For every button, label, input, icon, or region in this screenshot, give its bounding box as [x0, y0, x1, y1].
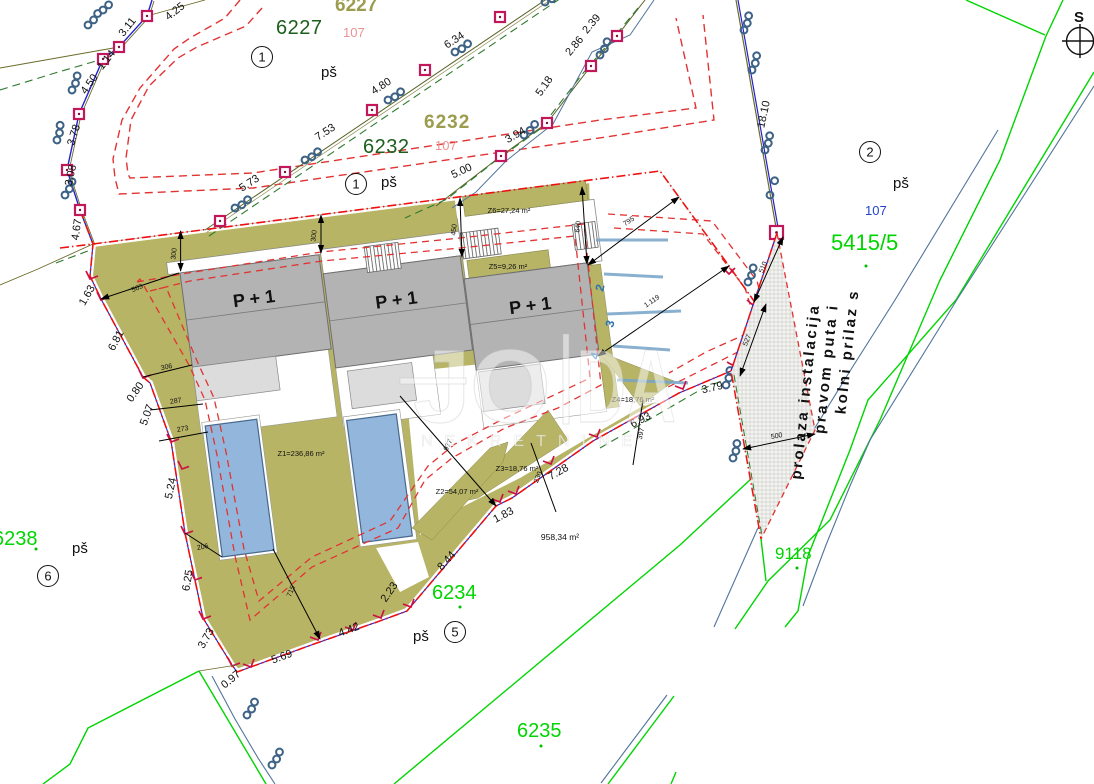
svg-text:J: J: [413, 329, 471, 445]
svg-text:6232: 6232: [424, 112, 470, 133]
svg-text:Z6=27,24 m²: Z6=27,24 m²: [488, 206, 531, 215]
svg-text:pš: pš: [381, 174, 397, 191]
svg-text:2: 2: [866, 145, 873, 160]
svg-text:Z3=18,76 m²: Z3=18,76 m²: [496, 464, 539, 473]
svg-text:6227: 6227: [276, 17, 323, 39]
svg-text:Z5=9,26 m²: Z5=9,26 m²: [489, 262, 528, 271]
svg-text:pš: pš: [321, 64, 337, 81]
svg-text:1: 1: [352, 177, 359, 192]
svg-text:pš: pš: [893, 175, 909, 192]
svg-text:6238: 6238: [0, 528, 38, 550]
svg-text:450: 450: [450, 224, 458, 236]
svg-text:6235: 6235: [517, 720, 562, 742]
svg-text:5415/5: 5415/5: [831, 230, 898, 255]
svg-text:6: 6: [44, 569, 51, 584]
svg-text:6227: 6227: [335, 0, 377, 16]
svg-text:6232: 6232: [363, 136, 410, 158]
svg-text:640: 640: [574, 221, 582, 233]
svg-text:958,34 m²: 958,34 m²: [541, 532, 579, 542]
svg-text:107: 107: [343, 25, 365, 40]
svg-text:9118: 9118: [775, 544, 812, 563]
svg-text:DA: DA: [576, 329, 676, 445]
svg-text:107: 107: [865, 203, 887, 218]
svg-text:pš: pš: [72, 540, 88, 557]
svg-text:107: 107: [435, 138, 457, 153]
svg-text:Z2=54,07 m²: Z2=54,07 m²: [436, 487, 479, 496]
svg-text:1: 1: [258, 50, 265, 65]
svg-text:5: 5: [451, 625, 458, 640]
svg-text:6234: 6234: [432, 582, 477, 604]
svg-text:O: O: [470, 329, 551, 445]
svg-text:S: S: [1074, 9, 1084, 26]
svg-text:NEKRETNINE: NEKRETNINE: [421, 433, 644, 450]
svg-text:300: 300: [170, 248, 178, 260]
svg-text:Z1=236,86 m²: Z1=236,86 m²: [278, 449, 325, 458]
svg-text:pš: pš: [413, 628, 429, 645]
svg-text:300: 300: [310, 230, 318, 242]
